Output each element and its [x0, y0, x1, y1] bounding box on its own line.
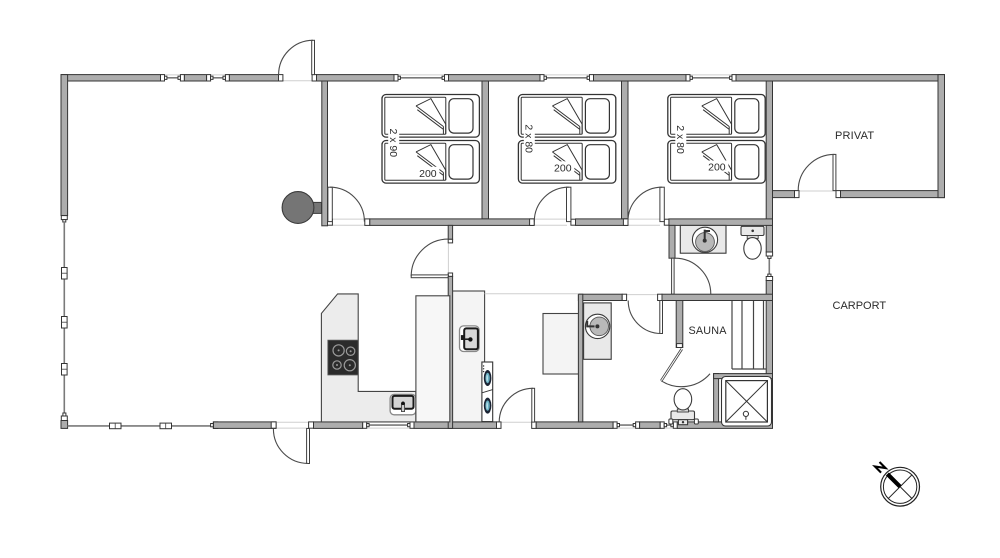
svg-text:200: 200 [708, 162, 726, 174]
svg-text:2 x 90: 2 x 90 [387, 128, 399, 157]
svg-text:2 x 80: 2 x 80 [522, 124, 534, 153]
svg-text:CARPORT: CARPORT [833, 300, 887, 312]
svg-text:200: 200 [419, 168, 437, 180]
svg-text:PRIVAT: PRIVAT [835, 130, 874, 142]
svg-text:2 x 80: 2 x 80 [674, 125, 686, 154]
svg-text:SAUNA: SAUNA [688, 325, 727, 337]
svg-text:200: 200 [554, 162, 572, 174]
